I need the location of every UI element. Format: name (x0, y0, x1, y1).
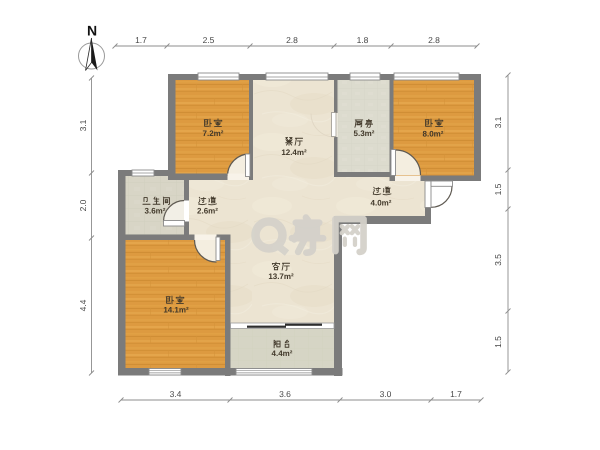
svg-text:5.3m²: 5.3m² (354, 129, 375, 138)
svg-text:4.0m²: 4.0m² (371, 199, 392, 208)
svg-text:3.5: 3.5 (493, 254, 503, 266)
svg-text:1.5: 1.5 (493, 183, 503, 195)
svg-text:7.2m²: 7.2m² (203, 129, 224, 138)
svg-text:4.4: 4.4 (78, 299, 88, 311)
svg-text:1.7: 1.7 (135, 35, 147, 45)
svg-text:4.4m²: 4.4m² (272, 349, 293, 358)
svg-text:1.8: 1.8 (357, 35, 369, 45)
svg-text:14.1m²: 14.1m² (163, 306, 189, 315)
svg-text:2.8: 2.8 (286, 35, 298, 45)
svg-text:2.8: 2.8 (428, 35, 440, 45)
svg-text:3.1: 3.1 (493, 116, 503, 128)
svg-text:3.0: 3.0 (380, 389, 392, 399)
svg-text:12.4m²: 12.4m² (281, 148, 307, 157)
svg-text:2.0: 2.0 (78, 199, 88, 211)
svg-text:2.5: 2.5 (203, 35, 215, 45)
svg-text:13.7m²: 13.7m² (268, 272, 294, 281)
svg-text:1.7: 1.7 (450, 389, 462, 399)
svg-text:3.6m²: 3.6m² (145, 207, 166, 216)
svg-text:3.6: 3.6 (279, 389, 291, 399)
svg-text:N: N (87, 23, 97, 39)
svg-text:1.5: 1.5 (493, 336, 503, 348)
svg-text:3.4: 3.4 (170, 389, 182, 399)
svg-text:3.1: 3.1 (78, 119, 88, 131)
svg-text:2.6m²: 2.6m² (197, 207, 218, 216)
svg-text:8.0m²: 8.0m² (423, 130, 444, 139)
